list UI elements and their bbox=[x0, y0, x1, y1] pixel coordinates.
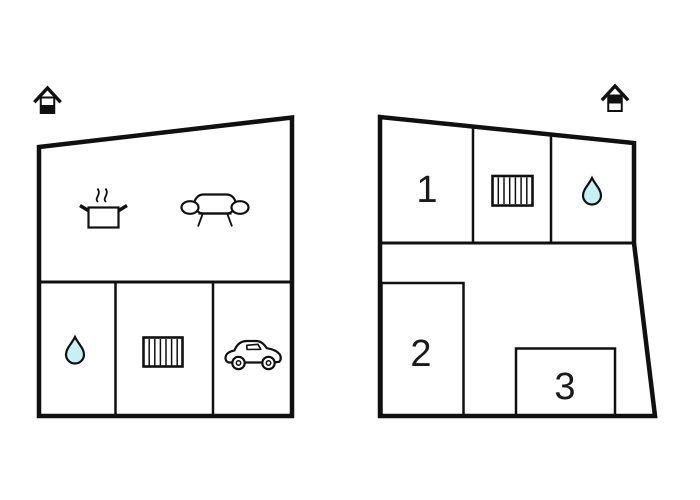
room-1-label: 1 bbox=[416, 169, 437, 211]
house-upper-floor-icon bbox=[603, 86, 627, 111]
floor-plan-drawing: 1 2 3 bbox=[0, 0, 700, 500]
upper-floor-plan: 1 2 3 bbox=[378, 86, 655, 416]
room-3-label: 3 bbox=[554, 366, 575, 408]
ground-floor-plan bbox=[36, 88, 295, 416]
radiator-icon bbox=[144, 338, 183, 367]
radiator-icon bbox=[493, 176, 533, 206]
room-2-label: 2 bbox=[410, 333, 431, 375]
floor-plan-canvas: 1 2 3 bbox=[0, 0, 700, 500]
ground-floor-outer-wall bbox=[39, 118, 292, 417]
house-ground-floor-icon bbox=[36, 88, 60, 113]
